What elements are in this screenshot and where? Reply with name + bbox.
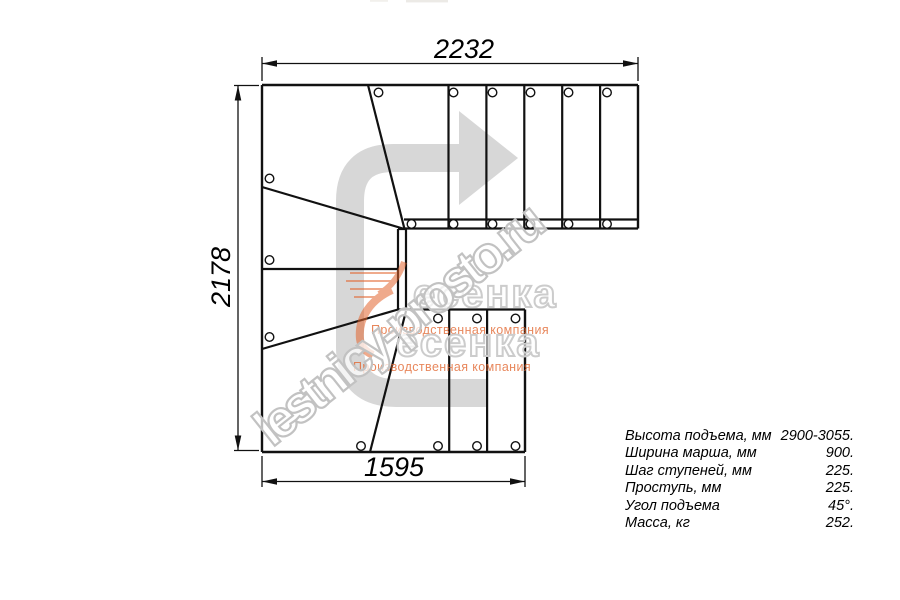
dimension-bottom: 1595: [262, 452, 525, 487]
spec-label: Проступь, мм: [625, 480, 721, 497]
spec-row: Ширина марша, мм 900.: [625, 445, 854, 462]
mounting-hole: [265, 174, 274, 183]
spec-row: Угол подъема 45°.: [625, 498, 854, 515]
mounting-hole: [374, 88, 383, 97]
mounting-hole: [511, 442, 520, 451]
spec-label: Угол подъема: [625, 498, 720, 515]
spec-label: Шаг ступеней, мм: [625, 463, 752, 480]
dimension-top-value: 2232: [433, 34, 494, 64]
mounting-hole: [357, 442, 366, 451]
winder-line: [262, 187, 405, 229]
dimension-left-value: 2178: [206, 247, 236, 308]
spec-label: Высота подъема, мм: [625, 428, 772, 445]
mounting-hole: [434, 442, 443, 451]
staircase-drawing-page: 2232 2178 1595: [0, 0, 900, 600]
spec-row: Высота подъема, мм 2900-3055.: [625, 428, 854, 445]
dim-arrowhead: [235, 86, 242, 101]
spec-value: 45°.: [828, 498, 854, 515]
spec-list: Высота подъема, мм 2900-3055. Ширина мар…: [625, 428, 854, 532]
spec-value: 252.: [826, 515, 854, 532]
spec-row: Шаг ступеней, мм 225.: [625, 463, 854, 480]
dimension-bottom-value: 1595: [364, 452, 425, 482]
spec-label: Масса, кг: [625, 515, 690, 532]
spec-value: 225.: [826, 480, 854, 497]
dim-arrowhead: [262, 478, 277, 485]
mounting-hole: [265, 333, 274, 342]
dimension-left: 2178: [206, 86, 259, 451]
mounting-hole: [564, 220, 573, 229]
spec-row: Проступь, мм 225.: [625, 480, 854, 497]
mounting-hole: [407, 220, 416, 229]
mounting-hole: [265, 256, 274, 265]
mounting-hole: [488, 88, 497, 97]
mounting-hole: [603, 220, 612, 229]
dim-arrowhead: [235, 436, 242, 451]
dim-arrowhead: [623, 60, 638, 67]
cropped-text-artifact: [370, 0, 448, 2]
mounting-hole: [564, 88, 573, 97]
spec-label: Ширина марша, мм: [625, 445, 757, 462]
spec-row: Масса, кг 252.: [625, 515, 854, 532]
dim-arrowhead: [262, 60, 277, 67]
mounting-hole: [449, 220, 458, 229]
mounting-hole: [473, 442, 482, 451]
direction-arrow-head: [459, 111, 518, 205]
mounting-hole: [526, 88, 535, 97]
mounting-hole: [449, 88, 458, 97]
dimension-top: 2232: [262, 34, 638, 81]
spec-value: 225.: [826, 463, 854, 480]
mounting-hole: [603, 88, 612, 97]
spec-value: 2900-3055.: [781, 428, 854, 445]
spec-value: 900.: [826, 445, 854, 462]
dim-arrowhead: [510, 478, 525, 485]
